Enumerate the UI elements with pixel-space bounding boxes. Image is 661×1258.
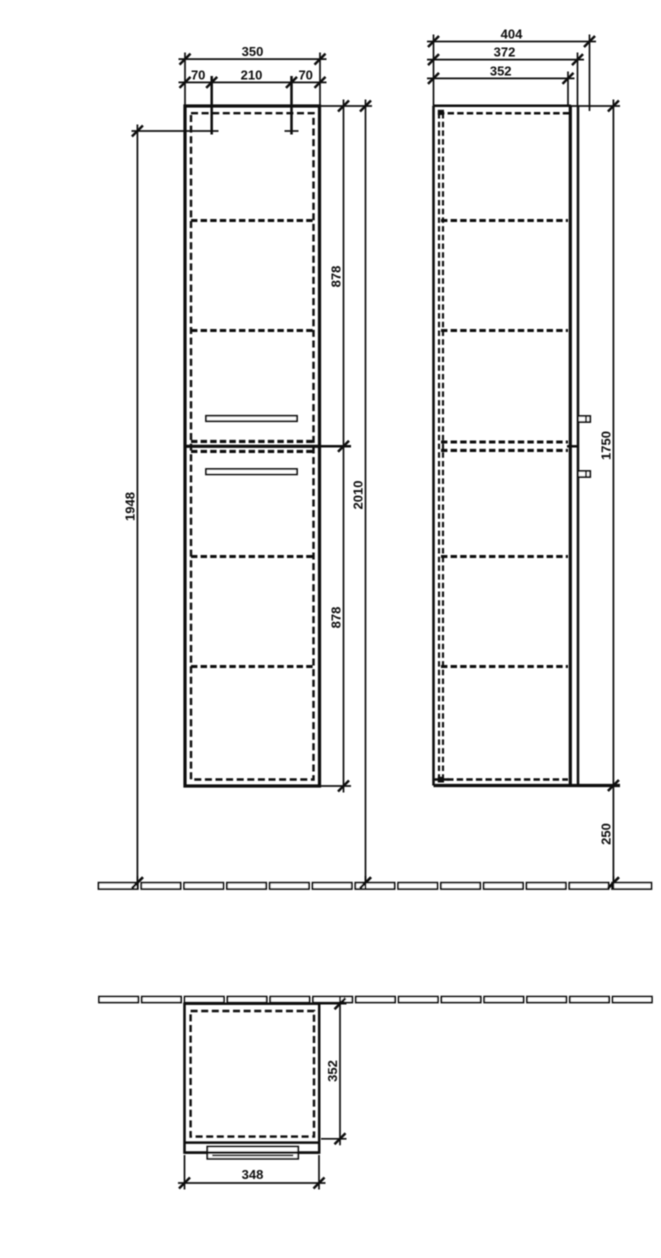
svg-text:350: 350	[242, 44, 264, 59]
svg-text:352: 352	[490, 63, 512, 78]
svg-text:70: 70	[191, 67, 205, 82]
svg-text:372: 372	[494, 45, 516, 60]
svg-text:878: 878	[329, 607, 344, 629]
svg-text:1750: 1750	[598, 431, 613, 460]
svg-text:878: 878	[329, 266, 344, 288]
svg-text:250: 250	[598, 823, 613, 845]
svg-text:404: 404	[501, 26, 523, 41]
svg-text:2010: 2010	[351, 481, 366, 510]
svg-text:1948: 1948	[122, 492, 137, 521]
svg-text:352: 352	[325, 1060, 340, 1082]
svg-text:70: 70	[298, 67, 312, 82]
svg-text:348: 348	[242, 1167, 264, 1182]
svg-text:210: 210	[241, 67, 263, 82]
